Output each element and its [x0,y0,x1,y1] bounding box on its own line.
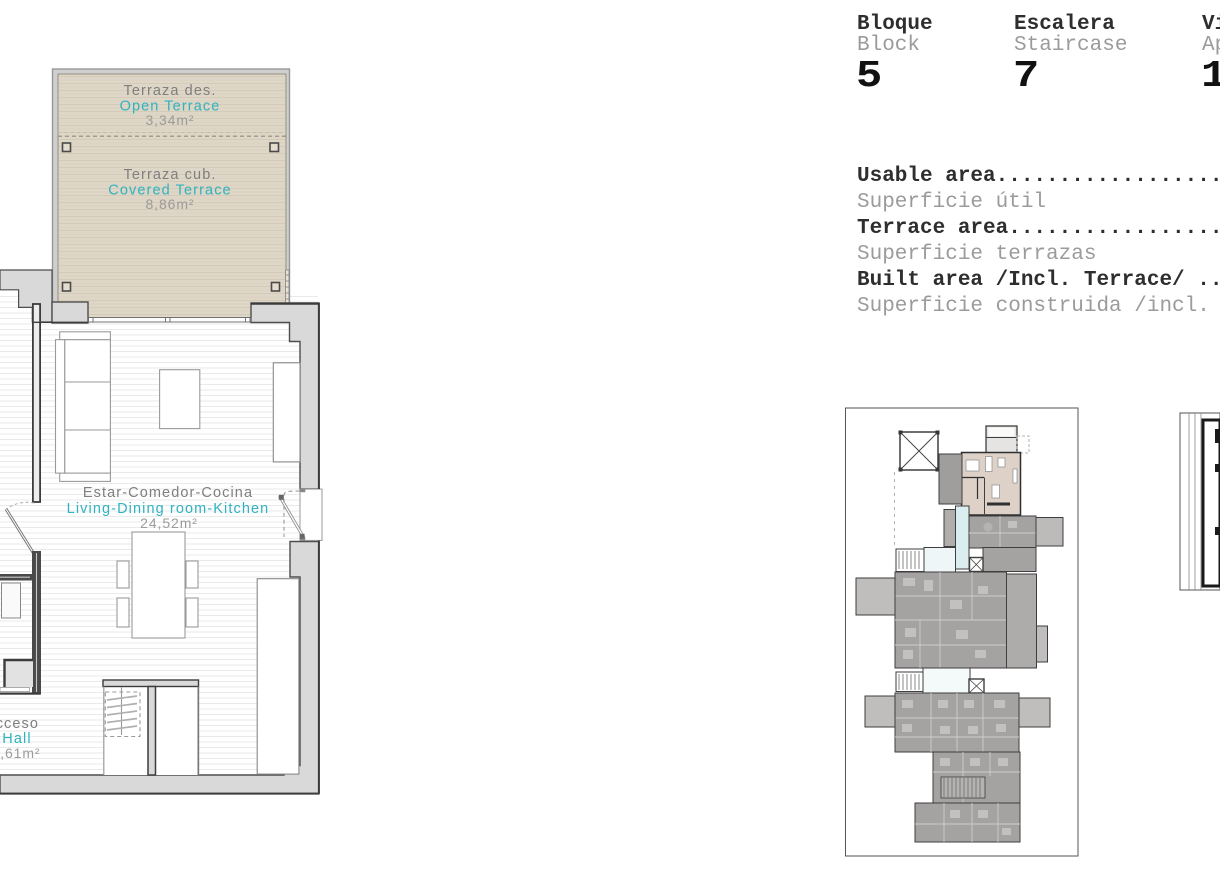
svg-text:Terraza cub.: Terraza cub. [124,167,217,183]
svg-text:Terraza des.: Terraza des. [124,83,217,99]
svg-text:2,61m²: 2,61m² [0,745,40,761]
svg-text:3,34m²: 3,34m² [146,112,195,128]
svg-text:Acceso: Acceso [0,716,39,732]
svg-text:24,52m²: 24,52m² [140,515,198,531]
svg-text:8,86m²: 8,86m² [146,196,195,212]
svg-text:Estar-Comedor-Cocina: Estar-Comedor-Cocina [83,485,253,501]
